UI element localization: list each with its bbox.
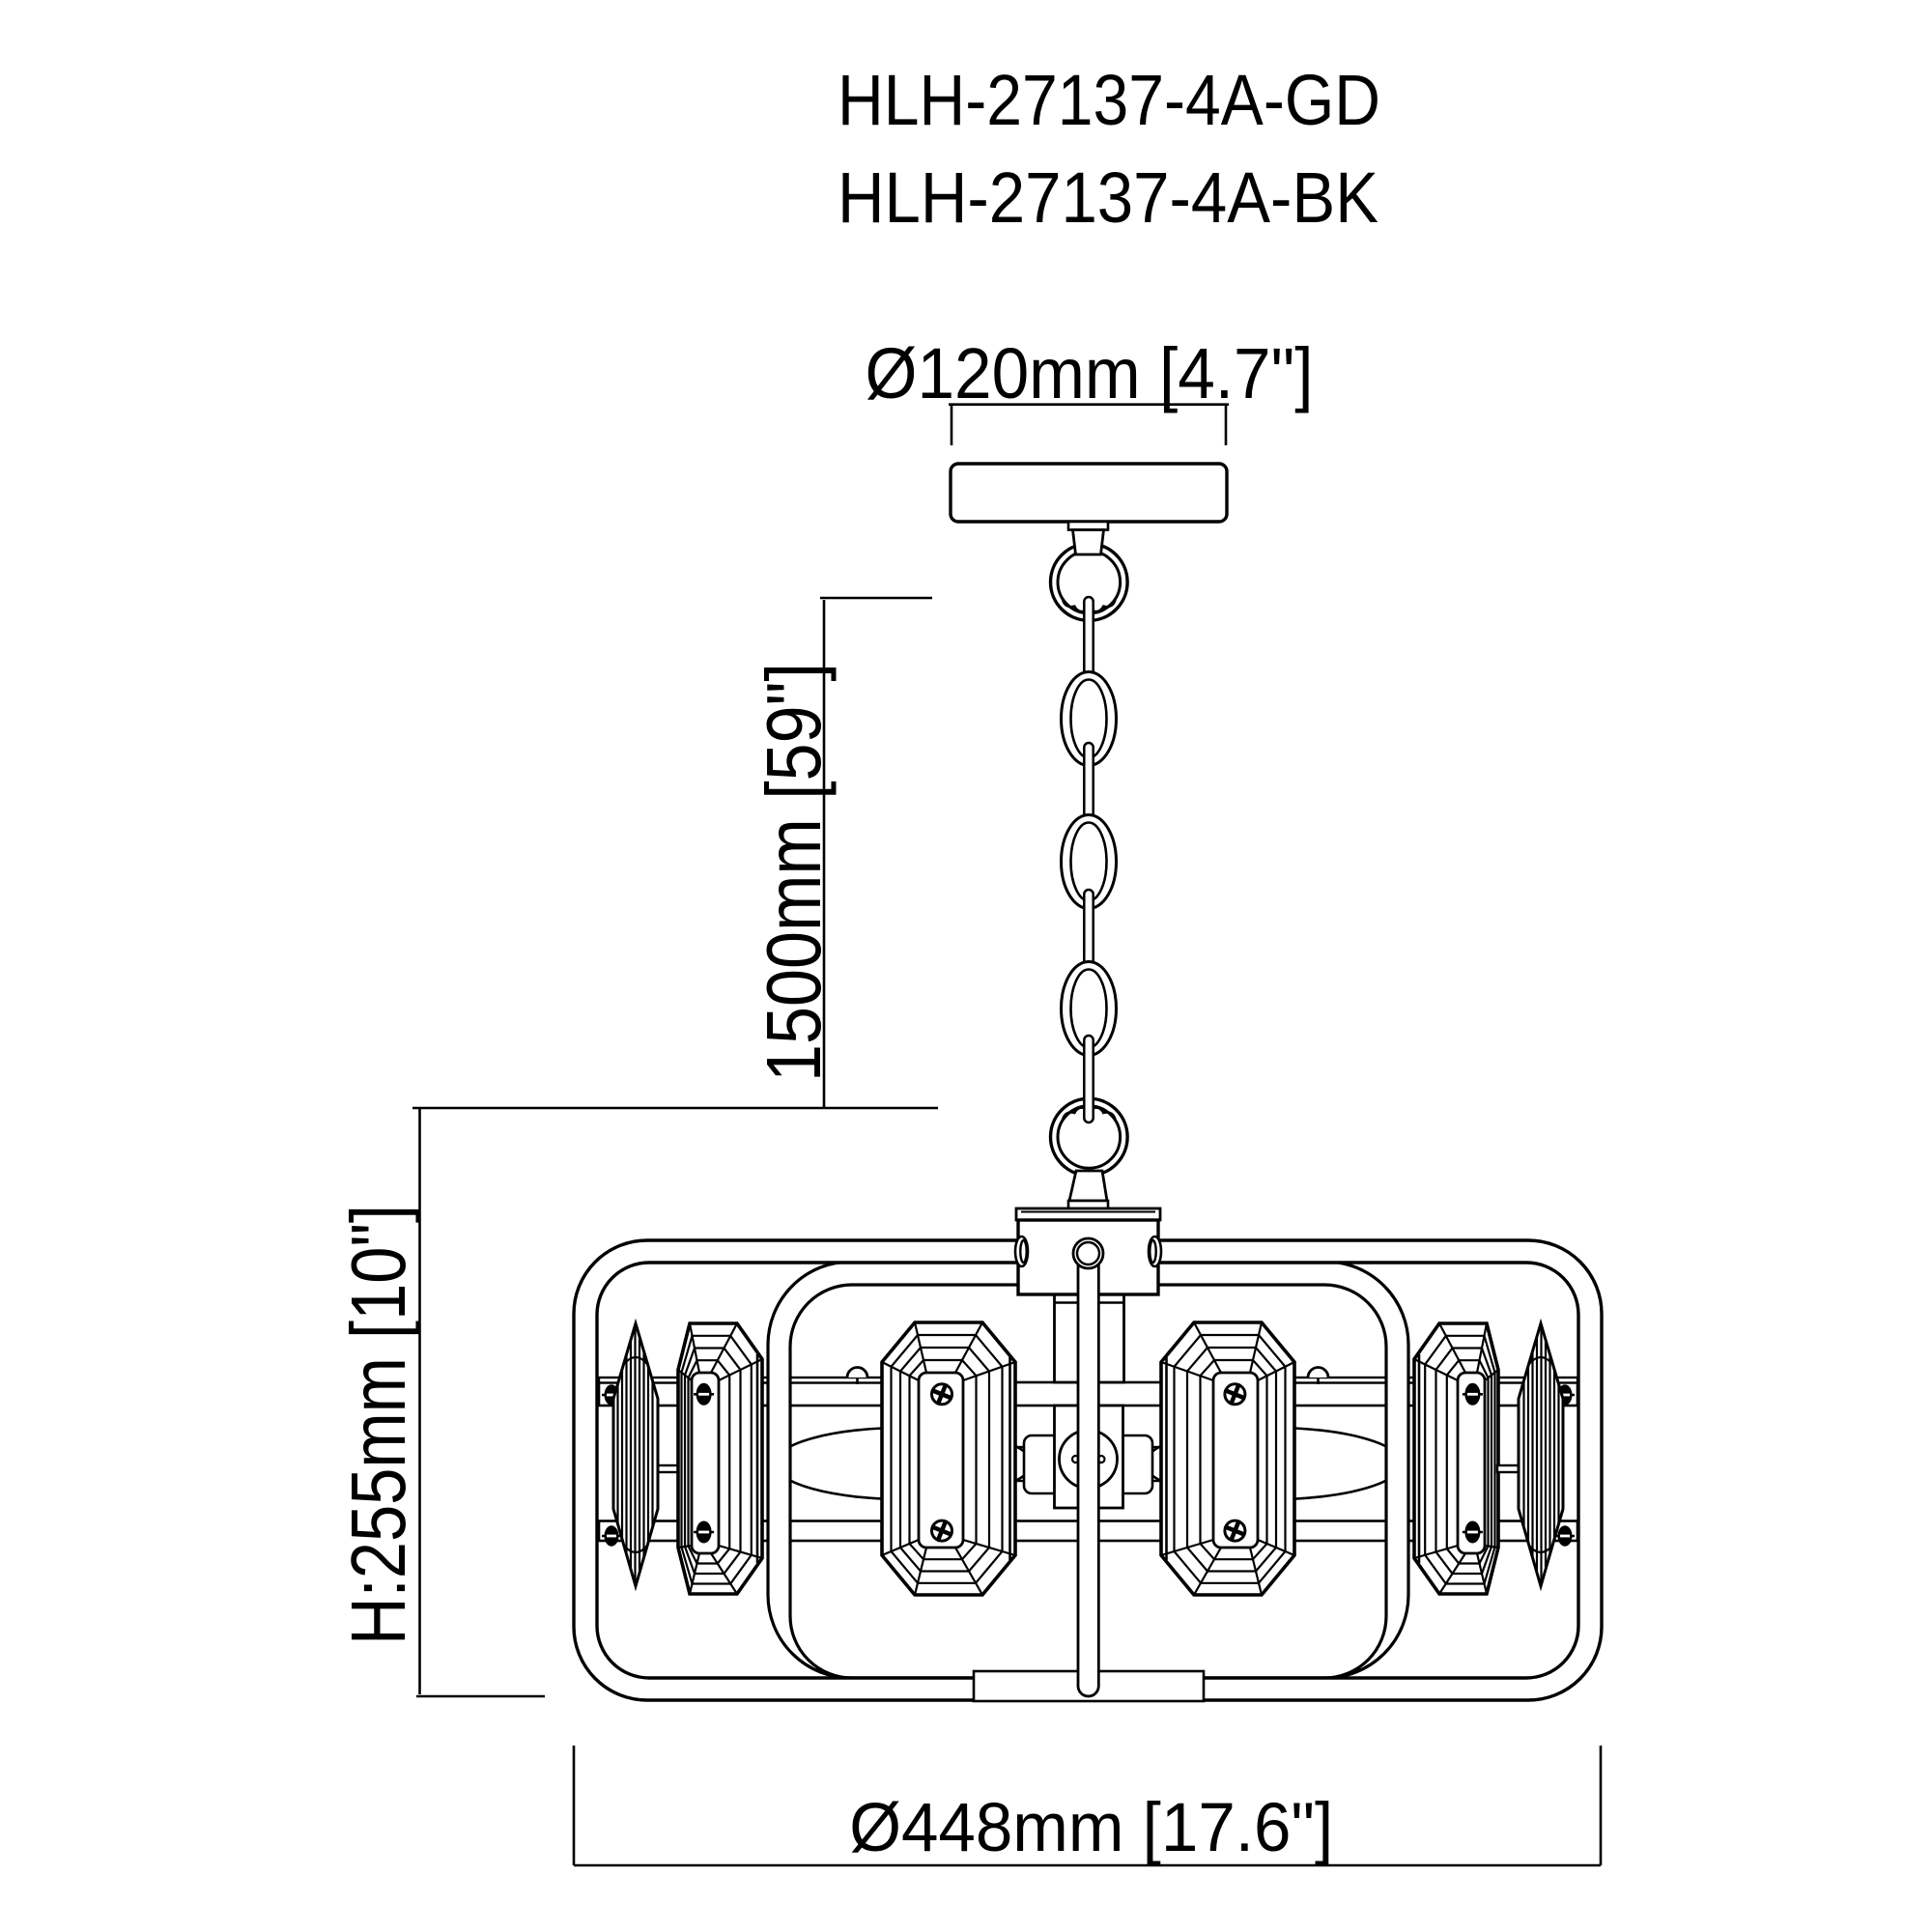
svg-text:H:255mm [10"]: H:255mm [10"] xyxy=(335,1205,421,1645)
svg-text:HLH-27137-4A-BK: HLH-27137-4A-BK xyxy=(838,157,1378,238)
svg-text:HLH-27137-4A-GD: HLH-27137-4A-GD xyxy=(838,60,1380,140)
svg-text:Ø448mm [17.6"]: Ø448mm [17.6"] xyxy=(849,1790,1333,1866)
svg-text:Ø120mm [4.7"]: Ø120mm [4.7"] xyxy=(866,333,1314,413)
